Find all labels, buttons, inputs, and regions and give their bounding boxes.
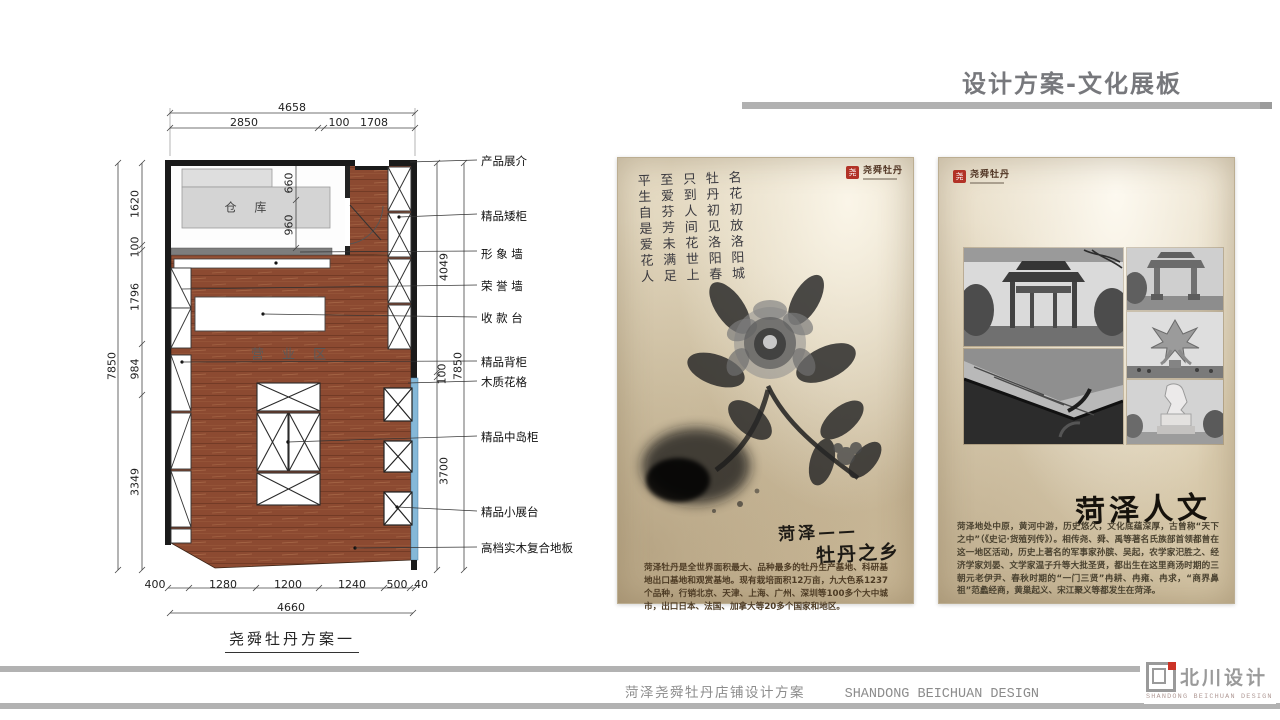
dim-bottom-seg: 1280 [209, 578, 237, 591]
top-wall-lintel [355, 166, 389, 170]
callout-low-cabinet: 精品矮柜 [481, 208, 527, 224]
dim-bottom-seg: 40 [414, 578, 428, 591]
callout-cashier: 收 款 台 [481, 310, 523, 326]
brand-seal-icon: 尧 [953, 170, 966, 183]
display-shelf-band [174, 259, 330, 268]
island-cabinets [257, 383, 320, 505]
callout-small-stand: 精品小展台 [481, 504, 539, 520]
photo-stone-archway [1127, 248, 1223, 310]
dim-left-total: 7850 [106, 352, 119, 380]
dim-top-seg: 100 [329, 116, 350, 129]
callout-honor-wall: 荣 誉 墙 [481, 278, 523, 294]
beichuan-logo-name: 北川设计 [1180, 663, 1268, 690]
dim-right-seg: 100 [436, 364, 449, 385]
ink-peony-painting [618, 158, 913, 603]
warehouse-shelf-top [182, 169, 272, 187]
cashier-counter [195, 297, 325, 331]
small-display-stands [384, 388, 412, 525]
right-wall-nub [411, 560, 417, 570]
photo-archway-gate [964, 248, 1123, 346]
dim-left-seg: 3349 [129, 468, 142, 496]
warehouse-label: 仓 库 [225, 199, 274, 216]
partition-wall [171, 248, 332, 255]
beichuan-logo-tagline: SHANDONG BEICHUAN DESIGN [1146, 693, 1273, 701]
title-underline-bar [742, 102, 1272, 109]
dim-left-seg: 984 [129, 359, 142, 380]
presentation-slide: 设计方案-文化展板 [0, 0, 1280, 720]
dim-bottom-seg: 1240 [338, 578, 366, 591]
business-area-label: 营 业 区 [251, 344, 333, 363]
callout-wood-flooring: 高档实木复合地板 [481, 540, 573, 556]
dim-door: 660 [283, 173, 296, 194]
callout-back-cabinet: 精品背柜 [481, 354, 527, 370]
dim-bottom-seg: 1200 [274, 578, 302, 591]
dim-top-seg: 1708 [360, 116, 388, 129]
photo-temple-roof [964, 349, 1123, 444]
dim-bottom-seg: 500 [387, 578, 408, 591]
culture-poster-humanities: 尧 尧舜牡丹 [938, 157, 1235, 604]
floor-plan: 4658 2850 100 1708 7850 1620 100 1796 98… [0, 0, 600, 680]
footer-text-zh: 菏泽尧舜牡丹店铺设计方案 [625, 685, 805, 701]
brand-tagline-rule [970, 182, 1004, 184]
footer-bar-bottom [0, 703, 1280, 709]
footer-bar-top [0, 666, 1140, 672]
brand-name: 尧舜牡丹 [970, 170, 1010, 180]
dim-right-seg: 3700 [438, 457, 451, 485]
dim-door: 960 [283, 215, 296, 236]
dim-right-seg: 4049 [438, 253, 451, 281]
footer-text: 菏泽尧舜牡丹店铺设计方案 SHANDONG BEICHUAN DESIGN [625, 681, 1039, 702]
plan-caption: 尧舜牡丹方案一 [225, 628, 359, 653]
dim-bottom-seg: 400 [145, 578, 166, 591]
page-title: 设计方案-文化展板 [962, 64, 1182, 99]
footer-text-en: SHANDONG BEICHUAN DESIGN [845, 687, 1039, 702]
logo-red-square [1168, 662, 1176, 670]
left-wall [165, 160, 171, 545]
callout-wood-lattice: 木质花格 [481, 374, 527, 390]
title-underline-cap [1260, 102, 1272, 109]
photo-flower-sculpture [1127, 312, 1223, 378]
dim-right-total: 7850 [452, 352, 465, 380]
right-wall [411, 160, 417, 378]
logo-inner-frame [1152, 668, 1166, 684]
beichuan-logo: 北川设计 SHANDONG BEICHUAN DESIGN [1144, 660, 1276, 704]
dim-top-total: 4658 [278, 101, 306, 114]
top-wall-opening [355, 160, 389, 166]
dim-bottom-total: 4660 [277, 601, 305, 614]
leader-dot [274, 261, 277, 264]
dim-left-seg: 100 [129, 237, 142, 258]
callout-product-display: 产品展介 [481, 153, 527, 169]
callout-image-wall: 形 象 墙 [481, 246, 523, 262]
door-jamb-lower [345, 246, 350, 255]
photo-statue-monument [1127, 380, 1223, 444]
culture-poster-peony: 尧 尧舜牡丹 名花初放洛阳城 牡丹初见洛阳春 只到人间花世上 至爱芬芳未满足 平… [617, 157, 914, 604]
left-wall-cabinets [171, 268, 191, 543]
poster-body-text: 菏泽地处中原，黄河中游，历史悠久，文化底蕴深厚，古曾称“天下之中”（《史记·货殖… [957, 521, 1219, 598]
dim-left-seg: 1620 [129, 190, 142, 218]
poster-body-text: 菏泽牡丹是全世界面积最大、品种最多的牡丹生产基地、科研基地出口基地和观赏基地。现… [644, 562, 888, 614]
dim-top-seg: 2850 [230, 116, 258, 129]
door-jamb-upper [345, 166, 350, 198]
callout-island-cabinet: 精品中岛柜 [481, 429, 539, 445]
brand-logo: 尧 尧舜牡丹 [953, 170, 1010, 184]
dim-left-seg: 1796 [129, 283, 142, 311]
beichuan-logo-icon [1146, 662, 1176, 692]
